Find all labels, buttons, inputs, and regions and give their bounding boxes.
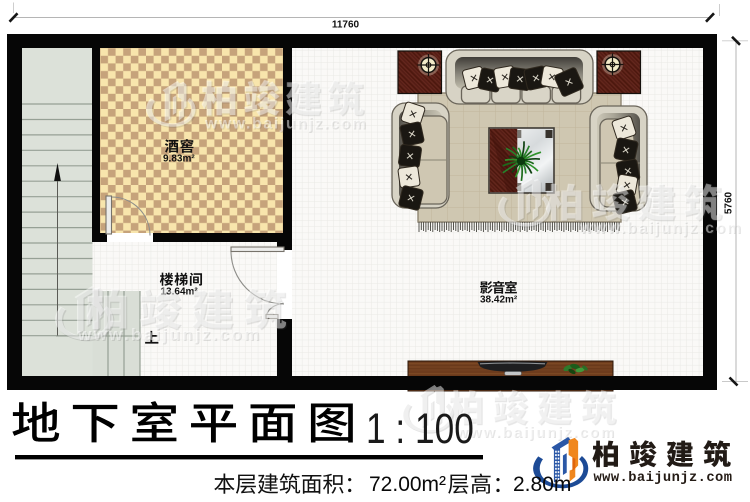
svg-text:www.baijunjz.com: www.baijunjz.com <box>77 325 262 344</box>
svg-text:1 : 100: 1 : 100 <box>366 405 474 453</box>
svg-text:9.83m²: 9.83m² <box>163 154 195 165</box>
svg-text:2.80m: 2.80m <box>513 473 571 496</box>
svg-text:www.baijunjz.com: www.baijunjz.com <box>594 470 733 486</box>
svg-text:www.baijunjz.com: www.baijunjz.com <box>455 424 616 441</box>
svg-text:38.42m²: 38.42m² <box>480 295 518 306</box>
svg-text:5760: 5760 <box>724 191 735 214</box>
svg-text:www.baijunjz.com: www.baijunjz.com <box>579 220 743 237</box>
svg-text:11760: 11760 <box>332 20 360 31</box>
svg-text:www.baijunjz.com: www.baijunjz.com <box>204 116 368 133</box>
svg-text:72.00m²: 72.00m² <box>369 473 446 496</box>
